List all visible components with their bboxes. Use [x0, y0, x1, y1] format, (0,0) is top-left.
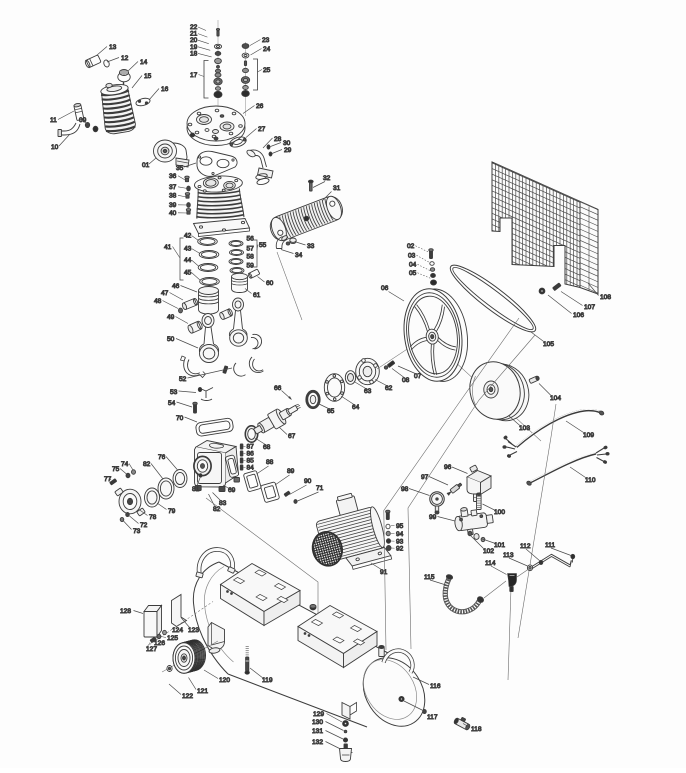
svg-text:87: 87 — [247, 444, 255, 451]
svg-text:10: 10 — [51, 144, 59, 151]
svg-text:16: 16 — [161, 86, 169, 93]
svg-text:06: 06 — [381, 285, 389, 292]
svg-text:84: 84 — [247, 465, 255, 472]
svg-text:17: 17 — [190, 72, 198, 79]
svg-text:67: 67 — [288, 433, 296, 440]
svg-text:129: 129 — [313, 711, 324, 718]
svg-text:95: 95 — [396, 523, 404, 530]
svg-text:70: 70 — [176, 415, 184, 422]
svg-text:99: 99 — [429, 514, 437, 521]
svg-text:121: 121 — [197, 688, 208, 695]
svg-text:26: 26 — [256, 103, 264, 110]
svg-text:102: 102 — [483, 548, 494, 555]
svg-text:31: 31 — [333, 185, 341, 192]
svg-text:124: 124 — [172, 627, 183, 634]
svg-text:57: 57 — [247, 246, 255, 253]
svg-text:93: 93 — [396, 539, 404, 546]
svg-text:25: 25 — [263, 67, 271, 74]
svg-text:94: 94 — [396, 531, 404, 538]
svg-text:45: 45 — [184, 270, 192, 277]
svg-text:01: 01 — [142, 162, 150, 169]
svg-text:73: 73 — [133, 528, 141, 535]
svg-text:47: 47 — [161, 290, 169, 297]
svg-text:98: 98 — [401, 486, 409, 493]
svg-text:128: 128 — [120, 608, 131, 615]
svg-text:40: 40 — [169, 210, 177, 217]
svg-text:116: 116 — [430, 683, 441, 690]
svg-text:88: 88 — [266, 459, 274, 466]
svg-text:82: 82 — [143, 461, 151, 468]
svg-text:64: 64 — [352, 404, 360, 411]
svg-text:13: 13 — [109, 44, 117, 51]
svg-text:96: 96 — [444, 464, 452, 471]
svg-text:72: 72 — [140, 522, 148, 529]
svg-text:101: 101 — [494, 542, 505, 549]
svg-text:130: 130 — [312, 719, 323, 726]
svg-text:100: 100 — [494, 509, 505, 516]
svg-text:65: 65 — [327, 408, 335, 415]
svg-text:24: 24 — [263, 46, 271, 53]
svg-text:86: 86 — [247, 451, 255, 458]
svg-text:50: 50 — [167, 336, 175, 343]
svg-text:108: 108 — [600, 294, 611, 301]
svg-text:107: 107 — [584, 304, 595, 311]
svg-text:114: 114 — [485, 560, 496, 567]
svg-text:33: 33 — [307, 243, 315, 250]
svg-text:89: 89 — [287, 468, 295, 475]
svg-text:36: 36 — [169, 173, 177, 180]
svg-text:82: 82 — [213, 506, 221, 513]
svg-text:41: 41 — [164, 244, 172, 251]
svg-text:81: 81 — [192, 486, 200, 493]
svg-text:04: 04 — [409, 262, 417, 269]
svg-text:11: 11 — [50, 117, 57, 124]
svg-text:117: 117 — [427, 714, 438, 721]
svg-text:08: 08 — [402, 377, 410, 384]
svg-text:37: 37 — [169, 184, 177, 191]
svg-text:79: 79 — [168, 508, 176, 515]
svg-text:97: 97 — [421, 474, 429, 481]
svg-text:78: 78 — [149, 514, 157, 521]
svg-text:15: 15 — [144, 73, 152, 80]
svg-text:58: 58 — [247, 254, 255, 261]
svg-text:02: 02 — [407, 243, 415, 250]
svg-text:56: 56 — [247, 236, 255, 243]
svg-text:120: 120 — [219, 677, 230, 684]
svg-text:52: 52 — [179, 376, 187, 383]
svg-text:09: 09 — [79, 117, 87, 124]
svg-text:54: 54 — [168, 400, 176, 407]
svg-text:30: 30 — [283, 140, 291, 147]
svg-text:125: 125 — [167, 635, 178, 642]
svg-text:23: 23 — [262, 37, 270, 44]
svg-text:113: 113 — [503, 552, 514, 559]
svg-text:122: 122 — [182, 693, 193, 700]
svg-text:14: 14 — [140, 59, 148, 66]
svg-text:27: 27 — [258, 126, 266, 133]
svg-text:29: 29 — [284, 147, 292, 154]
svg-text:76: 76 — [158, 454, 166, 461]
svg-text:03: 03 — [408, 253, 416, 260]
svg-text:132: 132 — [312, 739, 323, 746]
svg-text:90: 90 — [304, 478, 312, 485]
svg-text:106: 106 — [573, 312, 584, 319]
svg-text:34: 34 — [295, 252, 303, 259]
svg-text:18: 18 — [190, 50, 198, 57]
svg-text:61: 61 — [253, 292, 261, 299]
svg-text:118: 118 — [471, 726, 482, 733]
svg-text:131: 131 — [312, 728, 323, 735]
svg-text:39: 39 — [169, 202, 177, 209]
svg-text:127: 127 — [146, 646, 157, 653]
svg-text:59: 59 — [247, 263, 255, 270]
svg-text:66: 66 — [274, 385, 282, 392]
svg-text:05: 05 — [409, 270, 417, 277]
svg-text:111: 111 — [545, 542, 555, 549]
svg-text:48: 48 — [154, 298, 162, 305]
svg-text:69: 69 — [228, 487, 236, 494]
svg-text:74: 74 — [121, 461, 129, 468]
svg-text:42: 42 — [184, 233, 192, 240]
svg-text:60: 60 — [266, 280, 274, 287]
svg-text:12: 12 — [121, 55, 129, 62]
svg-text:49: 49 — [167, 314, 175, 321]
svg-text:112: 112 — [520, 543, 531, 550]
svg-text:46: 46 — [172, 283, 180, 290]
svg-text:32: 32 — [323, 175, 331, 182]
svg-text:38: 38 — [169, 193, 177, 200]
svg-text:92: 92 — [396, 546, 404, 553]
svg-text:85: 85 — [247, 458, 255, 465]
svg-text:55: 55 — [259, 242, 267, 249]
svg-text:119: 119 — [262, 677, 273, 684]
svg-text:63: 63 — [364, 388, 372, 395]
svg-text:44: 44 — [184, 257, 192, 264]
svg-text:71: 71 — [316, 485, 324, 492]
svg-text:62: 62 — [385, 385, 393, 392]
svg-text:28: 28 — [274, 136, 282, 143]
svg-text:115: 115 — [424, 574, 435, 581]
svg-text:53: 53 — [170, 389, 178, 396]
svg-text:75: 75 — [112, 466, 120, 473]
svg-text:43: 43 — [184, 246, 192, 253]
svg-text:91: 91 — [380, 569, 388, 576]
svg-text:35: 35 — [176, 165, 184, 172]
